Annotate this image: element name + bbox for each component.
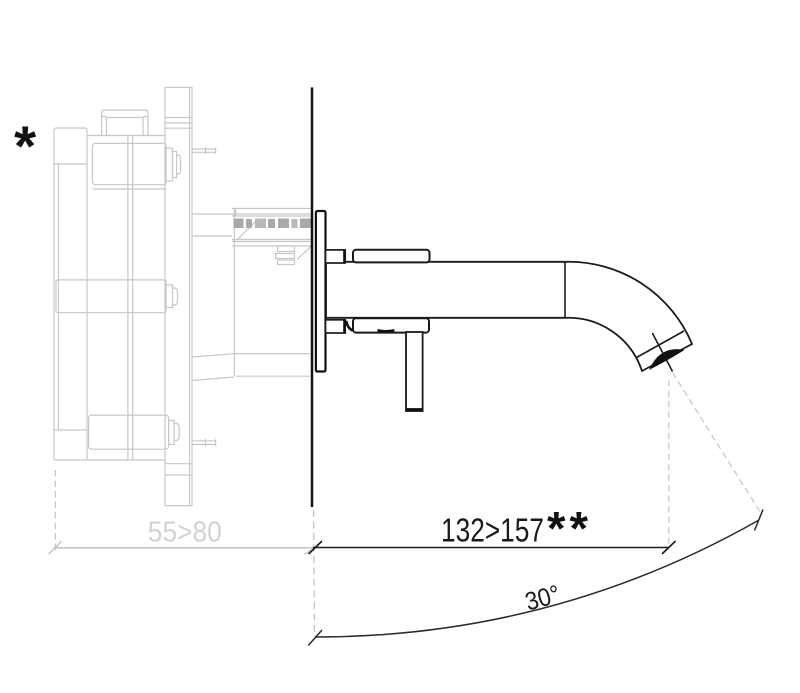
svg-text:55>80: 55>80 (148, 517, 222, 549)
svg-text:*: * (547, 502, 566, 555)
svg-text:*: * (14, 115, 37, 179)
svg-text:132>157: 132>157 (441, 511, 544, 548)
svg-text:*: * (570, 502, 589, 555)
